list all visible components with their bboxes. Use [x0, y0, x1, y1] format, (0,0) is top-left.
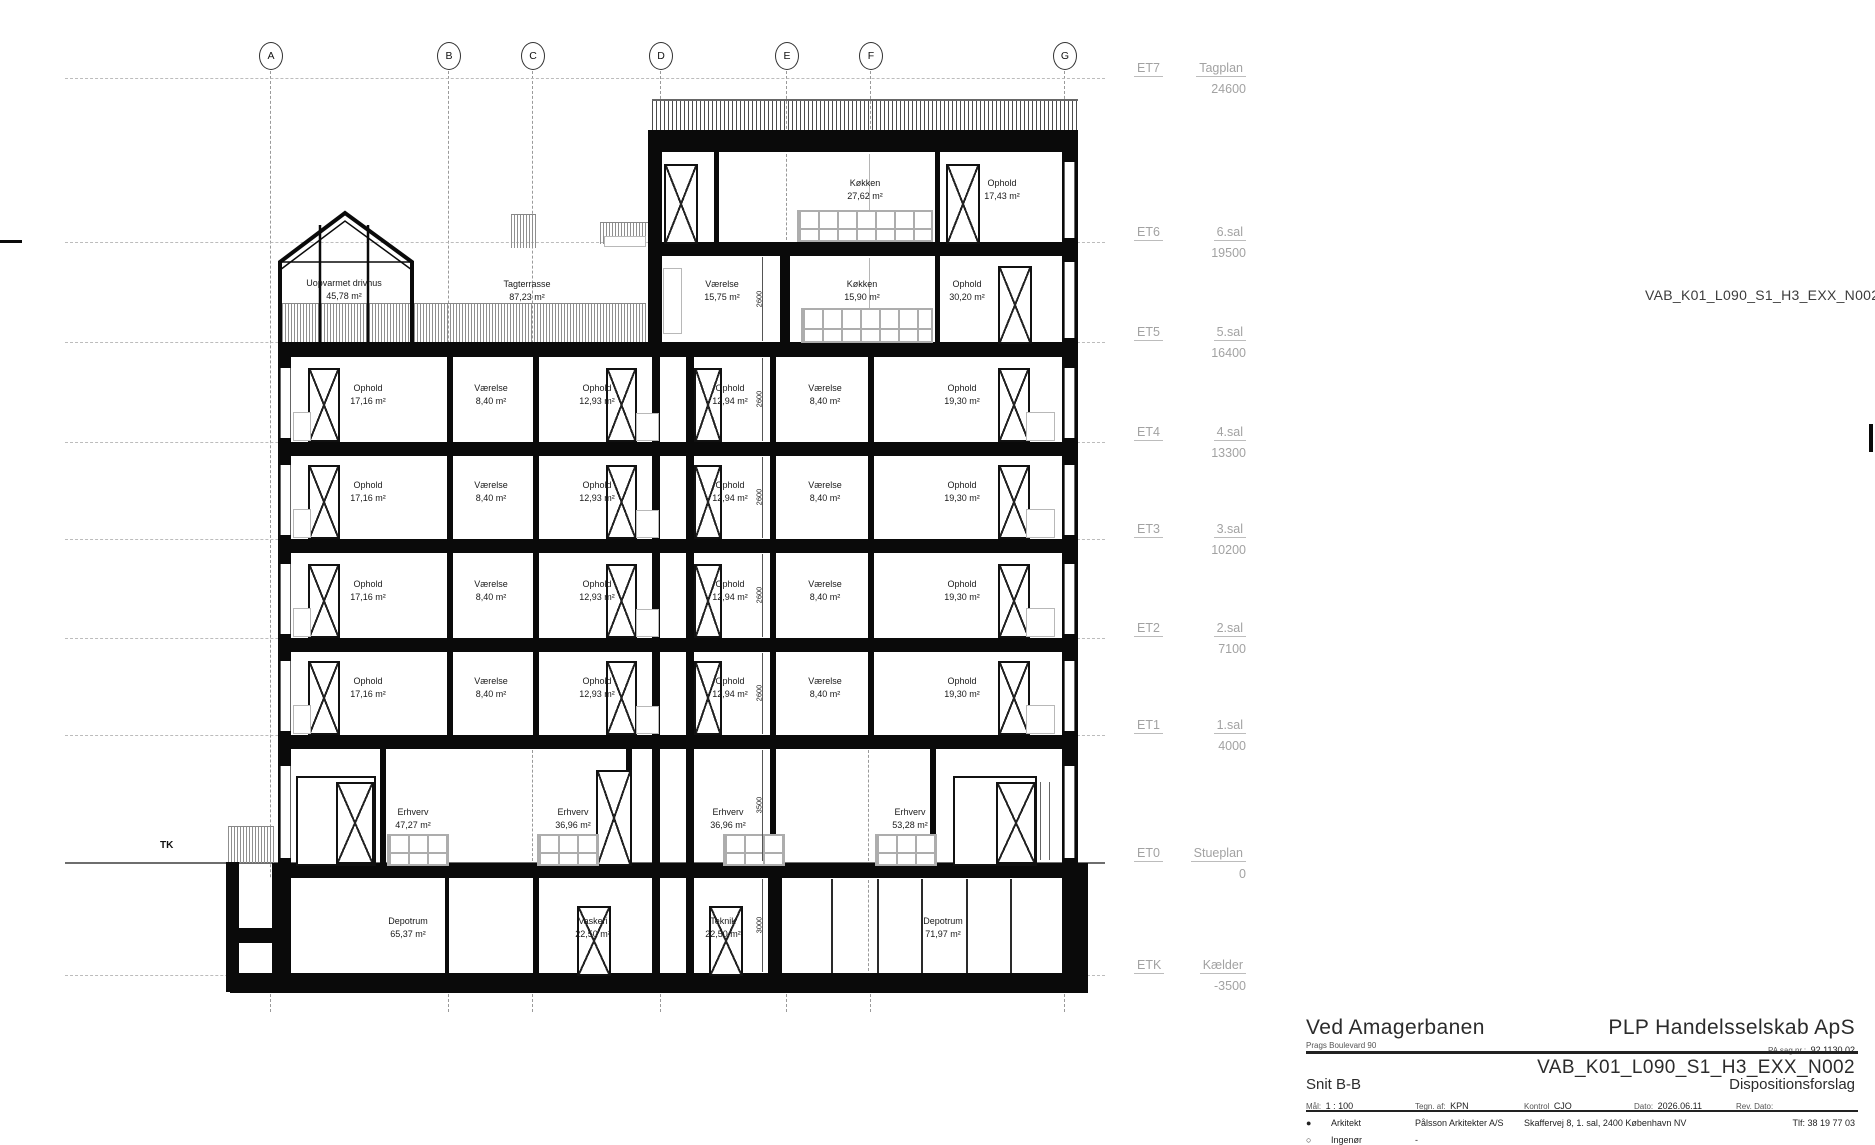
room-area: 8,40 m²: [808, 688, 842, 701]
grid-bubble-f: F: [859, 42, 883, 70]
penthouse-wall: [935, 152, 940, 242]
room-name: Vaskeri: [575, 915, 611, 928]
grid-bubble-e: E: [775, 42, 799, 70]
room-name: Ophold: [350, 479, 386, 492]
tower-wall-left-5sal: [648, 256, 662, 342]
level-label-etk: ETKKælder: [1134, 957, 1246, 974]
room-label: Ophold17,16 m²: [350, 382, 386, 407]
case-number-row: PA sag nr.: 92.1130.02: [1306, 1040, 1855, 1058]
room-name: Teknik: [705, 915, 741, 928]
edge-tick-left: [0, 240, 22, 243]
storage-partition: [877, 879, 879, 973]
level-elevation-et4: 13300: [1134, 446, 1250, 460]
room-label: Vaskeri22,50 m²: [575, 915, 611, 940]
room-area: 17,16 m²: [350, 492, 386, 505]
core-wall: [686, 878, 694, 973]
room-label: Ophold17,16 m²: [350, 675, 386, 700]
grid-trace: [868, 750, 869, 861]
level-label-et1: ET11.sal: [1134, 717, 1246, 734]
room-label: Uopvarmet drivhus45,78 m²: [306, 277, 382, 302]
room-label: Teknik22,50 m²: [705, 915, 741, 940]
grid-bubble-g: G: [1053, 42, 1077, 70]
level-name: 1.sal: [1214, 718, 1246, 734]
level-label-et6: ET66.sal: [1134, 224, 1246, 241]
room-name: Ophold: [350, 578, 386, 591]
window: [1040, 782, 1050, 860]
window: [280, 661, 291, 731]
room-label: Ophold12,93 m²: [579, 382, 615, 407]
window: [1064, 162, 1075, 238]
sill-cabinet: [1026, 608, 1055, 637]
room-label: Erhverv53,28 m²: [892, 806, 928, 831]
window: [1064, 262, 1075, 338]
room-area: 53,28 m²: [892, 819, 928, 832]
level-label-et4: ET44.sal: [1134, 424, 1246, 441]
room-name: Køkken: [847, 177, 883, 190]
window: [1064, 368, 1075, 438]
door: [998, 266, 1032, 344]
room-area: 22,50 m²: [575, 928, 611, 941]
door: [946, 164, 980, 244]
wall: [533, 652, 539, 735]
window: [1064, 766, 1075, 858]
room-area: 8,40 m²: [474, 395, 508, 408]
room-label: Køkken27,62 m²: [847, 177, 883, 202]
level-label-et0: ET0Stueplan: [1134, 845, 1246, 862]
level-code: ET7: [1134, 61, 1163, 77]
tk-label: TK: [160, 840, 173, 851]
wall: [447, 456, 453, 539]
level-name: 6.sal: [1214, 225, 1246, 241]
room-label: Depotrum71,97 m²: [923, 915, 963, 940]
level-code: ET0: [1134, 846, 1163, 862]
window: [1064, 661, 1075, 731]
wall: [533, 553, 539, 638]
room-area: 65,37 m²: [388, 928, 428, 941]
engineer-role: Ingenør: [1331, 1135, 1362, 1145]
kitchen-counter: [797, 210, 933, 242]
grid-trace: [532, 750, 533, 861]
grid-bubble-d: D: [649, 42, 673, 70]
room-label: Værelse8,40 m²: [474, 578, 508, 603]
window: [1064, 564, 1075, 634]
wall-basement: [533, 878, 539, 973]
basement-wall-right: [1062, 878, 1088, 973]
grid-bubble-a: A: [259, 42, 283, 70]
title-rule-bottom: [1306, 1110, 1858, 1112]
room-name: Ophold: [944, 479, 980, 492]
level-code: ET3: [1134, 522, 1163, 538]
roof-hatch-block: [511, 214, 536, 248]
sill-cabinet: [636, 706, 659, 734]
storage-partition: [831, 879, 833, 973]
level-name: Kælder: [1200, 958, 1246, 974]
window: [1064, 465, 1075, 535]
room-area: 8,40 m²: [808, 492, 842, 505]
window: [280, 465, 291, 535]
slab-et6: [648, 242, 1078, 256]
room-name: Ophold: [350, 675, 386, 688]
wall-5sal: [780, 256, 790, 342]
door: [336, 782, 374, 864]
room-area: 12,94 m²: [712, 591, 748, 604]
case-number-value: 92.1130.02: [1811, 1045, 1855, 1055]
room-name: Ophold: [944, 675, 980, 688]
room-area: 8,40 m²: [474, 591, 508, 604]
level-elevation-et5: 16400: [1134, 346, 1250, 360]
room-label: Ophold19,30 m²: [944, 479, 980, 504]
room-name: Erhverv: [395, 806, 431, 819]
room-name: Ophold: [350, 382, 386, 395]
tk-shaft-interior: [239, 878, 272, 973]
door: [596, 770, 632, 866]
room-label: Ophold12,94 m²: [712, 675, 748, 700]
edge-tick-right: [1869, 424, 1873, 452]
engineer-value: -: [1415, 1135, 1418, 1145]
architect-phone: Tlf: 38 19 77 03: [1306, 1118, 1855, 1128]
shopfront-glazing: [875, 834, 937, 866]
room-label: Værelse8,40 m²: [808, 675, 842, 700]
roof-curb: [604, 236, 646, 247]
level-name: 2.sal: [1214, 621, 1246, 637]
core-wall: [652, 878, 660, 973]
slab-et4: [278, 442, 1078, 456]
sill-cabinet: [636, 609, 659, 637]
tk-wall: [226, 862, 239, 992]
room-area: 30,20 m²: [949, 291, 985, 304]
shopfront-glazing: [723, 834, 785, 866]
dimension-text: 2600: [755, 291, 764, 308]
room-name: Ophold: [949, 278, 985, 291]
room-label: Ophold19,30 m²: [944, 578, 980, 603]
wall: [533, 357, 539, 442]
room-label: Ophold19,30 m²: [944, 675, 980, 700]
core-wall: [686, 357, 694, 442]
room-name: Ophold: [944, 578, 980, 591]
roof-railing-hatch: [652, 99, 1078, 132]
wall: [447, 357, 453, 442]
grid-bubble-b: B: [437, 42, 461, 70]
drawing-number-annotation: VAB_K01_L090_S1_H3_EXX_N002: [1645, 287, 1865, 303]
penthouse-wall: [714, 152, 719, 242]
room-area: 8,40 m²: [474, 492, 508, 505]
room-name: Værelse: [474, 578, 508, 591]
sill-cabinet: [293, 705, 311, 734]
level-code: ET1: [1134, 718, 1163, 734]
level-code: ET4: [1134, 425, 1163, 441]
door: [996, 782, 1036, 864]
grid-bubble-c: C: [521, 42, 545, 70]
wall: [770, 357, 776, 442]
room-label: Ophold12,94 m²: [712, 578, 748, 603]
level-label-et5: ET55.sal: [1134, 324, 1246, 341]
dimension-text: 2600: [755, 587, 764, 604]
level-elevation-et6: 19500: [1134, 246, 1250, 260]
room-name: Ophold: [712, 382, 748, 395]
level-name: 3.sal: [1214, 522, 1246, 538]
level-code: ET2: [1134, 621, 1163, 637]
level-name: Stueplan: [1191, 846, 1246, 862]
room-name: Uopvarmet drivhus: [306, 277, 382, 290]
dimension-text: 2600: [755, 685, 764, 702]
shopfront-glazing: [537, 834, 599, 866]
room-area: 8,40 m²: [474, 688, 508, 701]
room-area: 12,94 m²: [712, 395, 748, 408]
room-label: Værelse8,40 m²: [808, 382, 842, 407]
room-area: 12,93 m²: [579, 395, 615, 408]
wall: [533, 456, 539, 539]
grid-trace: [786, 154, 787, 240]
grid-bubble-label: A: [267, 50, 274, 62]
room-label: Ophold12,93 m²: [579, 479, 615, 504]
level-label-et7: ET7Tagplan: [1134, 60, 1246, 77]
room-label: Tagterrasse87,23 m²: [503, 278, 550, 303]
room-name: Ophold: [712, 675, 748, 688]
tk-grate-hatch: [228, 826, 274, 863]
room-label: Ophold12,94 m²: [712, 382, 748, 407]
level-name: 5.sal: [1214, 325, 1246, 341]
room-area: 47,27 m²: [395, 819, 431, 832]
window: [280, 564, 291, 634]
kitchen-counter: [801, 308, 933, 343]
level-code: ET5: [1134, 325, 1163, 341]
engineer-bullet: ○: [1306, 1135, 1311, 1145]
core-wall: [686, 652, 694, 735]
room-label: Ophold12,94 m²: [712, 479, 748, 504]
dimension-text: 3000: [755, 917, 764, 934]
wall-basement: [768, 878, 782, 973]
door: [308, 564, 340, 638]
room-name: Køkken: [844, 278, 880, 291]
room-name: Værelse: [808, 479, 842, 492]
room-label: Værelse8,40 m²: [808, 578, 842, 603]
room-label: Ophold12,93 m²: [579, 675, 615, 700]
room-label: Depotrum65,37 m²: [388, 915, 428, 940]
room-name: Værelse: [474, 382, 508, 395]
room-label: Ophold12,93 m²: [579, 578, 615, 603]
room-name: Erhverv: [555, 806, 591, 819]
section-drawing-canvas: A B C D E F G ET7Tagplan 24600 ET66.sal …: [0, 0, 1875, 1145]
room-area: 45,78 m²: [306, 290, 382, 303]
grid-bubble-label: F: [868, 50, 874, 62]
storage-partition: [966, 879, 968, 973]
room-name: Erhverv: [710, 806, 746, 819]
room-area: 8,40 m²: [808, 395, 842, 408]
room-area: 15,90 m²: [844, 291, 880, 304]
wall: [868, 456, 874, 539]
wall: [770, 456, 776, 539]
room-label: Ophold19,30 m²: [944, 382, 980, 407]
title-rule-top: [1306, 1051, 1858, 1054]
grid-bubble-label: C: [529, 50, 537, 62]
room-area: 12,94 m²: [712, 492, 748, 505]
level-line-et7: [65, 78, 1105, 79]
room-label: Værelse15,75 m²: [704, 278, 740, 303]
room-area: 17,16 m²: [350, 395, 386, 408]
grid-bubble-label: E: [783, 50, 790, 62]
room-name: Værelse: [808, 578, 842, 591]
level-name: Tagplan: [1196, 61, 1246, 77]
room-area: 12,93 m²: [579, 688, 615, 701]
wall: [447, 652, 453, 735]
room-label: Køkken15,90 m²: [844, 278, 880, 303]
room-name: Depotrum: [388, 915, 428, 928]
room-area: 87,23 m²: [503, 291, 550, 304]
dimension-text: 2600: [755, 489, 764, 506]
door: [308, 465, 340, 539]
level-elevation-et2: 7100: [1134, 642, 1250, 656]
room-label: Værelse8,40 m²: [474, 382, 508, 407]
room-label: Værelse8,40 m²: [808, 479, 842, 504]
level-elevation-etk: -3500: [1134, 979, 1250, 993]
room-area: 15,75 m²: [704, 291, 740, 304]
room-area: 12,94 m²: [712, 688, 748, 701]
sill-cabinet: [636, 510, 659, 538]
room-label: Erhverv47,27 m²: [395, 806, 431, 831]
room-area: 17,16 m²: [350, 591, 386, 604]
greenhouse-outline: [268, 203, 420, 345]
room-label: Erhverv36,96 m²: [710, 806, 746, 831]
room-name: Værelse: [808, 675, 842, 688]
wall-basement: [445, 878, 449, 973]
room-name: Ophold: [579, 578, 615, 591]
room-name: Tagterrasse: [503, 278, 550, 291]
core-wall: [686, 456, 694, 539]
room-area: 71,97 m²: [923, 928, 963, 941]
sill-cabinet: [1026, 412, 1055, 441]
grid-bubble-label: D: [657, 50, 665, 62]
room-area: 27,62 m²: [847, 190, 883, 203]
sill-cabinet: [293, 412, 311, 441]
room-area: 19,30 m²: [944, 395, 980, 408]
room-label: Erhverv36,96 m²: [555, 806, 591, 831]
room-name: Ophold: [984, 177, 1020, 190]
room-name: Ophold: [944, 382, 980, 395]
room-area: 19,30 m²: [944, 492, 980, 505]
room-name: Ophold: [712, 578, 748, 591]
room-area: 36,96 m²: [710, 819, 746, 832]
room-label: Ophold17,16 m²: [350, 578, 386, 603]
sill-cabinet: [293, 509, 311, 538]
window: [280, 766, 291, 858]
room-area: 17,43 m²: [984, 190, 1020, 203]
room-name: Ophold: [579, 382, 615, 395]
grid-bubble-label: G: [1061, 50, 1069, 62]
wall-ground: [380, 749, 386, 863]
room-area: 12,93 m²: [579, 591, 615, 604]
level-code: ETK: [1134, 958, 1164, 974]
slab-et2: [278, 638, 1078, 652]
room-label: Værelse8,40 m²: [474, 479, 508, 504]
room-area: 17,16 m²: [350, 688, 386, 701]
client-name: PLP Handelsselskab ApS: [1306, 1016, 1855, 1040]
sill-cabinet: [1026, 509, 1055, 538]
room-name: Værelse: [808, 382, 842, 395]
level-elevation-et1: 4000: [1134, 739, 1250, 753]
dimension-text: 2600: [755, 391, 764, 408]
level-elevation-et0: 0: [1134, 867, 1250, 881]
grid-trace: [868, 880, 869, 971]
room-name: Erhverv: [892, 806, 928, 819]
level-elevation-et7: 24600: [1134, 82, 1250, 96]
dimension-text: 3500: [755, 797, 764, 814]
room-area: 22,50 m²: [705, 928, 741, 941]
window-panel: [663, 268, 682, 334]
room-area: 12,93 m²: [579, 492, 615, 505]
room-name: Værelse: [474, 479, 508, 492]
core-wall: [686, 553, 694, 638]
slab-et3: [278, 539, 1078, 553]
phase-label: Dispositionsforslag: [1306, 1076, 1855, 1093]
room-name: Værelse: [704, 278, 740, 291]
level-code: ET6: [1134, 225, 1163, 241]
room-area: 36,96 m²: [555, 819, 591, 832]
shopfront-glazing: [387, 834, 449, 866]
wall: [770, 553, 776, 638]
wall: [770, 652, 776, 735]
wall: [868, 357, 874, 442]
room-area: 8,40 m²: [808, 591, 842, 604]
tower-wall-left-6sal: [648, 152, 662, 242]
core-wall: [686, 749, 694, 863]
door: [664, 164, 698, 244]
window: [280, 368, 291, 438]
storage-partition: [1010, 879, 1012, 973]
door: [308, 661, 340, 735]
basement-wall-left: [272, 878, 291, 973]
sill-cabinet: [1026, 705, 1055, 734]
room-label: Ophold17,16 m²: [350, 479, 386, 504]
room-name: Værelse: [474, 675, 508, 688]
room-area: 19,30 m²: [944, 591, 980, 604]
room-label: Værelse8,40 m²: [474, 675, 508, 700]
slab-et1: [278, 735, 1078, 749]
level-label-et2: ET22.sal: [1134, 620, 1246, 637]
wall: [447, 553, 453, 638]
wall: [868, 652, 874, 735]
room-name: Ophold: [579, 479, 615, 492]
wall-5sal: [935, 256, 940, 342]
room-name: Ophold: [579, 675, 615, 688]
level-elevation-et3: 10200: [1134, 543, 1250, 557]
penthouse-roof-slab: [648, 130, 1078, 152]
grid-bubble-label: B: [445, 50, 452, 62]
level-name: 4.sal: [1214, 425, 1246, 441]
slab-etk-foundation: [230, 973, 1088, 993]
room-label: Ophold30,20 m²: [949, 278, 985, 303]
level-label-et3: ET33.sal: [1134, 521, 1246, 538]
door: [308, 368, 340, 442]
sill-cabinet: [293, 608, 311, 637]
room-name: Ophold: [712, 479, 748, 492]
wall: [868, 553, 874, 638]
core-wall: [652, 749, 660, 863]
room-name: Depotrum: [923, 915, 963, 928]
room-label: Ophold17,43 m²: [984, 177, 1020, 202]
sill-cabinet: [636, 413, 659, 441]
tk-slab: [239, 928, 291, 943]
room-area: 19,30 m²: [944, 688, 980, 701]
